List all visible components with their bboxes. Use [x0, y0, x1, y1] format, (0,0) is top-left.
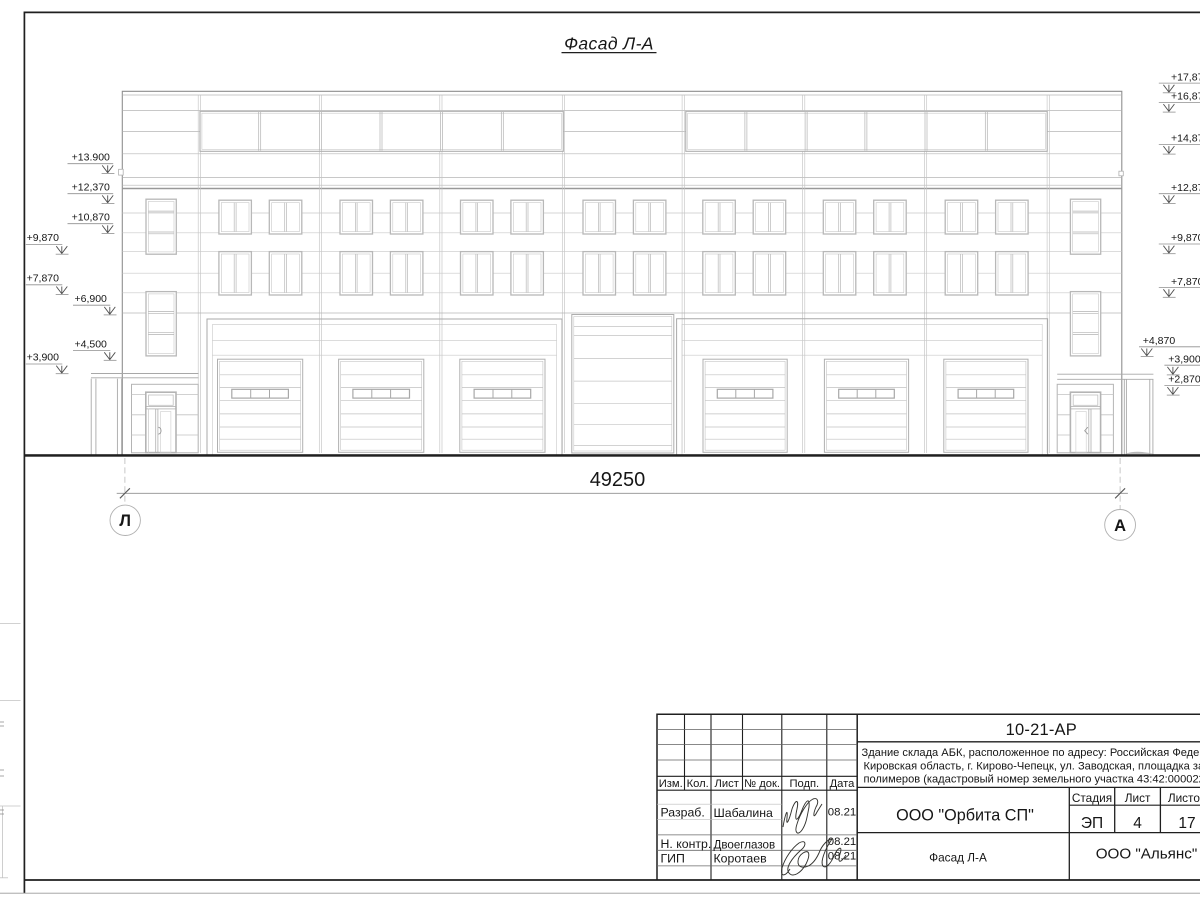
svg-text:Разраб.: Разраб.	[661, 805, 705, 819]
svg-text:ЭП: ЭП	[1081, 815, 1103, 832]
svg-text:Коротаев: Коротаев	[714, 852, 767, 866]
svg-text:08.21: 08.21	[828, 836, 857, 848]
svg-text:+13.900: +13.900	[72, 151, 110, 163]
svg-text:+9,870: +9,870	[27, 232, 60, 244]
svg-text:+3,900: +3,900	[1168, 353, 1200, 365]
svg-text:ООО "Орбита СП": ООО "Орбита СП"	[896, 807, 1034, 825]
svg-text:Шабалина: Шабалина	[714, 806, 774, 820]
svg-text:+14,870: +14,870	[1171, 133, 1200, 145]
svg-text:+4,500: +4,500	[74, 338, 107, 350]
svg-text:Здание склада АБК, расположенн: Здание склада АБК, расположенное по адре…	[862, 747, 1200, 759]
svg-text:+16,870: +16,870	[1171, 91, 1200, 103]
svg-text:+7,870: +7,870	[27, 273, 60, 285]
svg-text:+9,870: +9,870	[1171, 232, 1200, 244]
svg-text:Лист: Лист	[715, 778, 739, 790]
svg-text:Фасад Л-А: Фасад Л-А	[564, 34, 654, 54]
svg-text:Л: Л	[119, 512, 131, 530]
svg-text:4: 4	[1133, 815, 1142, 832]
svg-text:+3,900: +3,900	[27, 352, 60, 364]
svg-text:Листов: Листов	[1168, 791, 1200, 805]
svg-text:полимеров (кадастровый номер з: полимеров (кадастровый номер земельного …	[864, 773, 1200, 785]
svg-text:+12,370: +12,370	[72, 181, 110, 193]
svg-text:Н. контр.: Н. контр.	[661, 837, 712, 851]
svg-text:+4,870: +4,870	[1143, 335, 1176, 347]
svg-text:А: А	[1114, 517, 1126, 535]
svg-text:+10,870: +10,870	[72, 211, 110, 223]
svg-text:Стадия: Стадия	[1072, 791, 1112, 805]
svg-text:Кировская область, г. Кирово-Ч: Кировская область, г. Кирово-Чепецк, ул.…	[864, 760, 1200, 772]
svg-text:ГИП: ГИП	[661, 851, 685, 865]
svg-text:17: 17	[1178, 815, 1195, 832]
svg-text:Фасад Л-А: Фасад Л-А	[929, 851, 987, 865]
svg-text:+7,870: +7,870	[1171, 276, 1200, 288]
svg-text:08.21: 08.21	[828, 807, 857, 819]
svg-text:ООО "Альянс": ООО "Альянс"	[1096, 846, 1198, 863]
svg-text:Подп.: Подп.	[789, 778, 819, 790]
svg-text:Кол.: Кол.	[687, 778, 709, 790]
svg-text:№ док.: № док.	[744, 778, 780, 790]
svg-text:+2,870: +2,870	[1168, 374, 1200, 386]
svg-text:Дата: Дата	[830, 778, 856, 790]
svg-text:+6,900: +6,900	[74, 293, 107, 305]
svg-text:Лист: Лист	[1125, 791, 1151, 805]
svg-text:49250: 49250	[590, 469, 646, 491]
svg-text:Изм.: Изм.	[659, 778, 683, 790]
svg-text:+12,870: +12,870	[1171, 182, 1200, 194]
svg-text:10-21-АР: 10-21-АР	[1006, 721, 1077, 739]
svg-text:+17,870: +17,870	[1171, 71, 1200, 83]
svg-text:Двоеглазов: Двоеглазов	[714, 838, 776, 851]
